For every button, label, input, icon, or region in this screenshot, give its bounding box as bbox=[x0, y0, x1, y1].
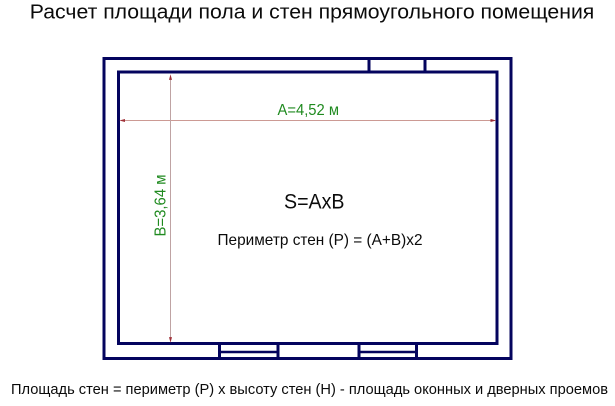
svg-text:S=AxB: S=AxB bbox=[284, 190, 345, 213]
svg-text:Расчет площади пола и стен пря: Расчет площади пола и стен прямоугольног… bbox=[30, 1, 595, 23]
svg-text:Периметр стен (Р) = (А+В)х2: Периметр стен (Р) = (А+В)х2 bbox=[218, 232, 423, 249]
svg-text:В=3,64 м: В=3,64 м bbox=[153, 175, 170, 237]
svg-text:А=4,52 м: А=4,52 м bbox=[278, 102, 340, 119]
svg-text:Площадь стен = периметр (Р) х: Площадь стен = периметр (Р) х высоту сте… bbox=[11, 382, 608, 398]
